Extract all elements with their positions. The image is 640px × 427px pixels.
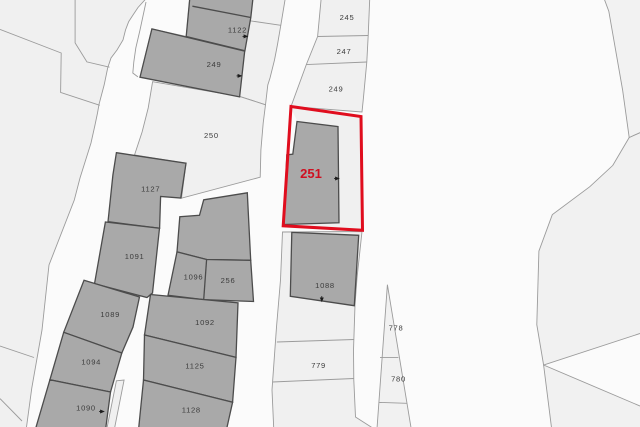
svg-text:245: 245: [340, 13, 355, 22]
svg-text:1091: 1091: [125, 252, 145, 261]
svg-text:1090: 1090: [76, 404, 96, 413]
svg-text:256: 256: [221, 276, 236, 285]
svg-text:1122: 1122: [228, 26, 247, 35]
svg-text:778: 778: [389, 324, 404, 333]
svg-text:250: 250: [204, 131, 219, 140]
svg-text:247: 247: [337, 47, 352, 56]
svg-text:1125: 1125: [185, 362, 204, 371]
svg-text:780: 780: [391, 375, 406, 384]
svg-text:1127: 1127: [141, 185, 160, 194]
svg-text:1089: 1089: [100, 310, 120, 319]
svg-text:1088: 1088: [315, 281, 335, 290]
svg-text:1094: 1094: [81, 358, 101, 367]
svg-text:1128: 1128: [182, 406, 201, 415]
svg-text:1096: 1096: [184, 273, 204, 282]
svg-text:251: 251: [300, 166, 322, 181]
svg-text:249: 249: [329, 85, 344, 94]
svg-text:249: 249: [207, 60, 222, 69]
svg-text:1092: 1092: [195, 318, 215, 327]
svg-text:779: 779: [311, 361, 326, 370]
